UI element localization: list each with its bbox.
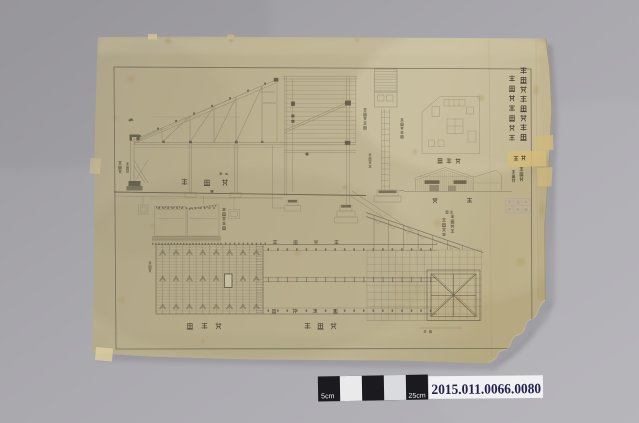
- svg-text:2015.011.0066.0080: 2015.011.0066.0080: [431, 381, 541, 398]
- svg-text:5cm: 5cm: [321, 393, 335, 400]
- svg-text:25cm: 25cm: [408, 393, 425, 400]
